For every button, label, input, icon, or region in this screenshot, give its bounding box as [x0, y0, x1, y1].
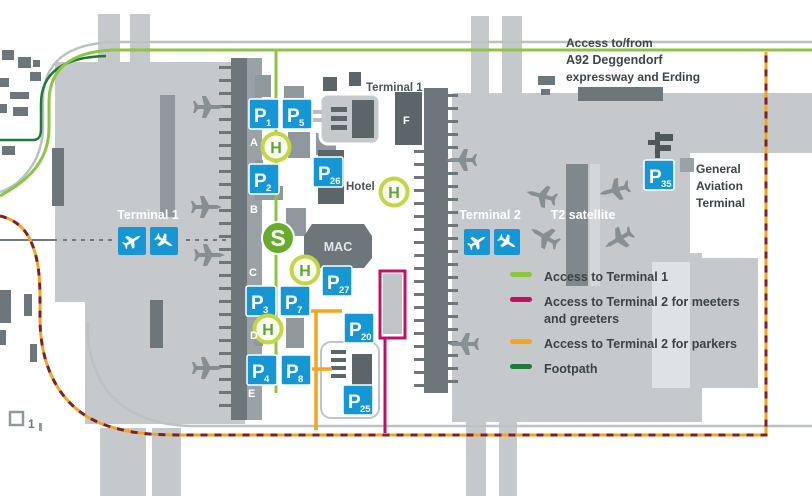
general-aviation-label-3: Terminal — [696, 196, 745, 210]
sbahn-station-marker[interactable]: S — [262, 222, 294, 254]
parking-sign-p4[interactable]: P4 — [247, 355, 277, 385]
gate-area-letter-E: E — [248, 388, 255, 400]
jet-bridge — [448, 224, 458, 227]
parking-sign-p2[interactable]: P2 — [249, 164, 279, 194]
marker-square-icon — [10, 412, 23, 425]
building-block — [349, 72, 361, 86]
jet-bridge — [219, 157, 231, 160]
jet-bridge — [219, 92, 231, 95]
terminal1-interior-block — [160, 95, 175, 217]
jet-bridge — [448, 146, 458, 149]
gate-area-letter-F: F — [403, 115, 410, 127]
parking-sign-number: 20 — [361, 332, 372, 343]
jet-bridge — [219, 352, 231, 355]
jet-bridge — [219, 404, 231, 407]
parking-sign-p3[interactable]: P3 — [246, 286, 276, 316]
building-block — [33, 60, 40, 67]
jet-bridge — [219, 183, 231, 186]
jet-bridge — [448, 198, 458, 201]
building-block — [2, 50, 14, 60]
gate-area-letter-A: A — [250, 137, 258, 149]
bus-stop-letter: H — [299, 263, 311, 280]
parking-sign-number: 25 — [360, 404, 371, 415]
bus-stop-marker[interactable]: H — [263, 134, 290, 161]
jet-bridge — [448, 172, 458, 175]
jet-bridge — [219, 313, 231, 316]
jet-bridge — [448, 302, 458, 305]
terminal1-building — [55, 62, 245, 302]
airport-map: P1P5P2P26P3P7P27P20P4P8P25P35HHHHS Termi… — [0, 0, 812, 496]
building-block — [286, 318, 304, 348]
parking-sign-p8[interactable]: P8 — [281, 355, 311, 385]
parking-sign-p5[interactable]: P5 — [282, 99, 312, 129]
legend-item-label: Access to Terminal 2 for meeters — [544, 295, 740, 309]
jet-bridge — [448, 250, 458, 253]
jet-bridge — [414, 332, 424, 335]
north-apron-building — [578, 87, 663, 101]
parking-sign-p35[interactable]: P35 — [644, 160, 674, 190]
jet-bridge — [219, 274, 231, 277]
jet-bridge — [448, 315, 458, 318]
terminal2-north-prong — [471, 16, 489, 96]
legend-item-label: Access to Terminal 1 — [544, 270, 668, 284]
building-block — [24, 294, 32, 316]
north-apron-building — [541, 89, 550, 95]
jet-bridge — [448, 107, 458, 110]
jet-bridge — [448, 211, 458, 214]
terminal1-module-f-label: Terminal 1 — [366, 82, 423, 94]
terminal1-south-prong — [152, 428, 181, 496]
jet-bridge — [219, 79, 231, 82]
bus-stop-marker[interactable]: H — [292, 257, 319, 284]
sbahn-letter: S — [270, 225, 285, 251]
jet-bridge — [414, 241, 424, 244]
bus-stop-letter: H — [270, 140, 282, 157]
parking-sign-number: 2 — [266, 183, 271, 194]
jet-bridge — [219, 378, 231, 381]
jet-bridge — [448, 289, 458, 292]
jet-bridge — [448, 380, 458, 383]
jet-bridge — [414, 358, 424, 361]
jet-bridge — [414, 176, 424, 179]
jet-bridge — [414, 267, 424, 270]
legend-item-label: Access to Terminal 2 for parkers — [544, 337, 737, 351]
access-note-line1: Access to/from — [566, 36, 653, 50]
access-note-line2: A92 Deggendorf — [566, 53, 663, 67]
parking-sign-number: 1 — [266, 118, 272, 129]
building-block — [30, 72, 41, 81]
building-block — [2, 146, 15, 155]
terminal2-label: Terminal 2 — [459, 208, 521, 222]
bus-stop-letter: H — [388, 185, 400, 202]
jet-bridge — [414, 228, 424, 231]
mac-label: MAC — [324, 240, 352, 254]
jet-bridge — [448, 133, 458, 136]
building-block — [323, 77, 337, 91]
gate-area-letter-D: D — [250, 330, 258, 342]
departures-sign[interactable] — [118, 227, 146, 255]
terminal1-interior-block — [52, 148, 64, 206]
legend-swatch — [510, 364, 532, 369]
terminal1-label: Terminal 1 — [117, 208, 179, 222]
departures-sign[interactable] — [464, 229, 490, 255]
gate-area-letter-C: C — [249, 267, 257, 279]
jet-bridge — [414, 345, 424, 348]
parking-sign-number: 27 — [339, 285, 350, 296]
jet-bridge — [219, 66, 231, 69]
jet-bridge — [448, 237, 458, 240]
terminal2-pier — [424, 88, 448, 393]
central-parking-structure — [308, 94, 380, 144]
parking-sign-p26[interactable]: P26 — [313, 157, 343, 187]
parking-sign-p20[interactable]: P20 — [344, 313, 374, 343]
jet-bridge — [219, 222, 231, 225]
gate-area-letter-H: H — [407, 247, 415, 259]
gate-area-letter-G: G — [406, 218, 415, 230]
jet-bridge — [219, 144, 231, 147]
jet-bridge — [219, 196, 231, 199]
legend-swatch — [510, 339, 532, 344]
t2-satellite-building — [566, 164, 588, 286]
building-block — [284, 86, 304, 98]
parking-sign-p25[interactable]: P25 — [343, 385, 373, 415]
parking-sign-number: 26 — [330, 176, 341, 187]
jet-bridge — [414, 202, 424, 205]
arrivals-sign[interactable] — [494, 229, 520, 255]
jet-bridge — [448, 263, 458, 266]
parking-sign-p1[interactable]: P1 — [249, 99, 279, 129]
terminal1-north-prong — [130, 14, 150, 64]
terminal2-south-prong — [499, 422, 517, 496]
general-aviation-label-1: General — [696, 162, 741, 176]
jet-bridge — [414, 163, 424, 166]
terminal1-interior-block — [150, 300, 163, 348]
jet-bridge — [219, 287, 231, 290]
bus-stop-marker[interactable]: H — [381, 179, 408, 206]
meeters-greeters-building — [383, 274, 402, 334]
west-buildings-cluster — [0, 50, 41, 362]
parking-sign-number: 8 — [298, 374, 303, 385]
jet-bridge — [414, 293, 424, 296]
bus-stop-marker[interactable]: H — [255, 316, 282, 343]
jet-bridge — [448, 94, 458, 97]
marker-number: 1 — [28, 417, 35, 431]
parking-sign-number: 35 — [661, 179, 672, 190]
jet-bridge — [219, 391, 231, 394]
jet-bridge — [448, 367, 458, 370]
jet-bridge — [219, 170, 231, 173]
access-note-line3: expressway and Erding — [566, 70, 700, 84]
marker-tick — [39, 423, 42, 431]
jet-bridge — [448, 185, 458, 188]
parking-sign-number: 5 — [299, 118, 305, 129]
terminal1-south-prong — [100, 428, 146, 496]
t2-satellite-label: T2 satellite — [551, 208, 616, 222]
building-block — [18, 57, 31, 68]
hotel-label: Hotel — [346, 181, 375, 193]
legend-item: Access to Terminal 2 for parkers — [510, 337, 737, 351]
jet-bridge — [414, 319, 424, 322]
legend-item-label: Footpath — [544, 362, 597, 376]
building-block — [30, 344, 37, 362]
jet-bridge — [219, 326, 231, 329]
north-apron-building — [538, 76, 555, 85]
building-block — [0, 78, 9, 87]
terminal2-northeast-apron — [702, 93, 812, 153]
terminal2-south-prong — [466, 422, 486, 496]
t2-satellite-slot — [590, 164, 600, 286]
jet-bridge — [219, 235, 231, 238]
arrivals-sign[interactable] — [150, 227, 178, 255]
legend-item-label: and greeters — [544, 312, 619, 326]
building-block — [0, 330, 6, 345]
parking-sign-p7[interactable]: P7 — [280, 286, 310, 316]
parking-sign-number: 7 — [297, 305, 302, 316]
jet-bridge — [448, 276, 458, 279]
jet-bridge — [448, 328, 458, 331]
building-block — [0, 104, 7, 113]
general-aviation-label-2: Aviation — [696, 179, 743, 193]
gate-area-letter-B: B — [250, 204, 258, 216]
legend-swatch — [510, 272, 532, 277]
jet-bridge — [414, 306, 424, 309]
parking-sign-p27[interactable]: P27 — [322, 266, 352, 296]
bus-stop-letter: H — [262, 322, 274, 339]
jet-bridge — [219, 131, 231, 134]
jet-bridge — [414, 371, 424, 374]
jet-bridge — [414, 215, 424, 218]
jet-bridge — [448, 354, 458, 357]
general-aviation-building — [680, 158, 694, 172]
jet-bridge — [414, 189, 424, 192]
terminal2-north-prong — [502, 16, 522, 96]
building-block — [0, 290, 11, 323]
jet-bridge — [219, 248, 231, 251]
building-block — [10, 92, 29, 99]
map-marker-1: 1 — [10, 412, 42, 431]
jet-bridge — [448, 120, 458, 123]
jet-bridge — [219, 300, 231, 303]
building-block — [255, 75, 271, 97]
jet-bridge — [414, 150, 424, 153]
building-block — [13, 107, 28, 116]
jet-bridge — [219, 209, 231, 212]
jet-bridge — [219, 339, 231, 342]
jet-bridge — [414, 254, 424, 257]
airport-map-svg: P1P5P2P26P3P7P27P20P4P8P25P35HHHHS Termi… — [0, 0, 812, 496]
legend-swatch — [510, 297, 532, 302]
jet-bridge — [219, 261, 231, 264]
jet-bridge — [414, 384, 424, 387]
parking-sign-number: 4 — [264, 374, 270, 385]
terminal2-east-block — [700, 258, 758, 388]
jet-bridge — [414, 280, 424, 283]
jet-bridge — [219, 118, 231, 121]
